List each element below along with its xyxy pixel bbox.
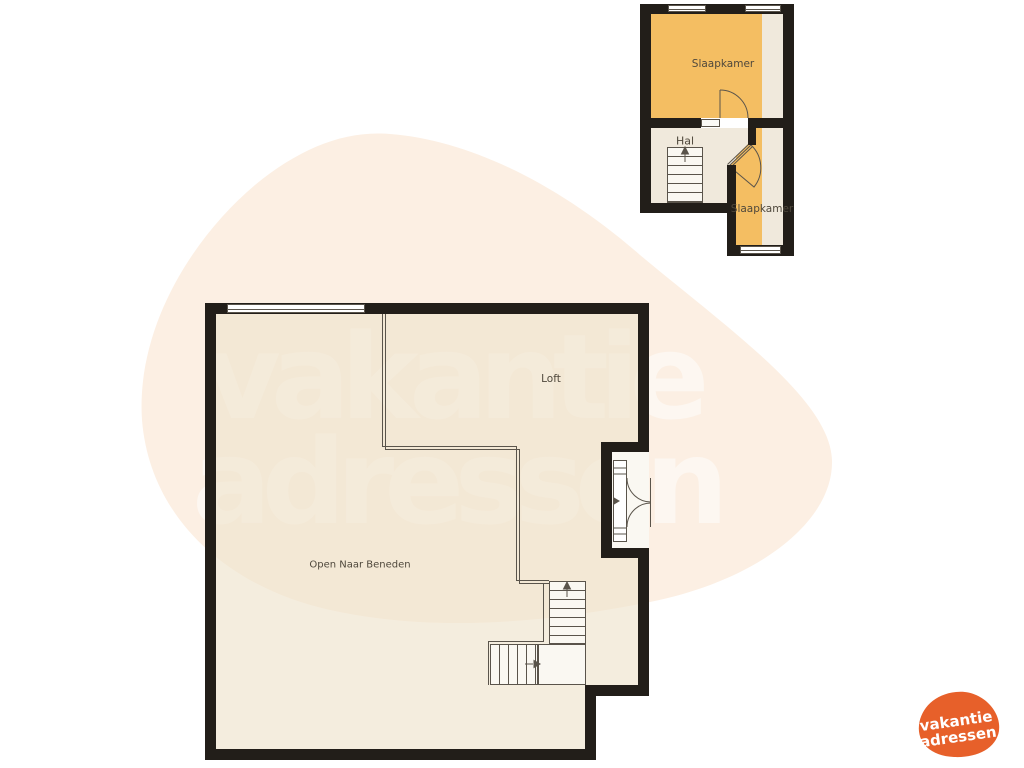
hal-stairs	[667, 147, 703, 203]
room-label-open-naar-beneden: Open Naar Beneden	[309, 560, 410, 571]
room-label-loft: Loft	[541, 373, 561, 385]
main-wall-right-lower	[638, 558, 649, 696]
floorplan-page: vakantie adressen Loft Open Naar Beneden…	[0, 0, 1024, 768]
hal-bottom-wall	[640, 203, 736, 213]
main-stairs-lower-flight	[490, 644, 538, 685]
room-slaapkamer-bottom-floor	[736, 143, 762, 245]
main-floor-lower-area	[216, 685, 585, 749]
brand-logo: vakantie adressen	[905, 680, 1015, 768]
main-wall-right-upper	[638, 303, 649, 452]
main-wall-bottom	[205, 749, 596, 760]
hal-doorway-threshold	[701, 119, 720, 127]
main-wall-notch-vertical	[585, 685, 596, 760]
room-label-slaapkamer-bottom: Slaapkamer	[731, 203, 793, 215]
door-vestibule	[612, 452, 649, 548]
upper-divider-wall-right	[748, 118, 794, 128]
main-stairs-upper-flight	[549, 581, 586, 644]
upper-window-bottom	[740, 246, 781, 254]
main-stairs-landing	[538, 644, 586, 685]
room-slaapkamer-top-strip	[762, 14, 783, 118]
upper-divider-wall-left	[640, 118, 701, 128]
room-slaapkamer-bottom-strip	[762, 128, 783, 245]
room-label-hal: Hal	[676, 135, 694, 148]
upper-wall-right	[783, 4, 794, 256]
upper-wall-a	[748, 128, 756, 145]
upper-wall-left	[640, 4, 651, 212]
door-recess-wall-left	[601, 442, 612, 558]
main-wall-left	[205, 303, 216, 760]
upper-window-1	[668, 5, 706, 12]
main-top-window	[227, 304, 365, 313]
room-label-slaapkamer-top: Slaapkamer	[692, 58, 754, 70]
upper-window-2	[745, 5, 781, 12]
door-recess-wall-bottom	[601, 548, 649, 558]
